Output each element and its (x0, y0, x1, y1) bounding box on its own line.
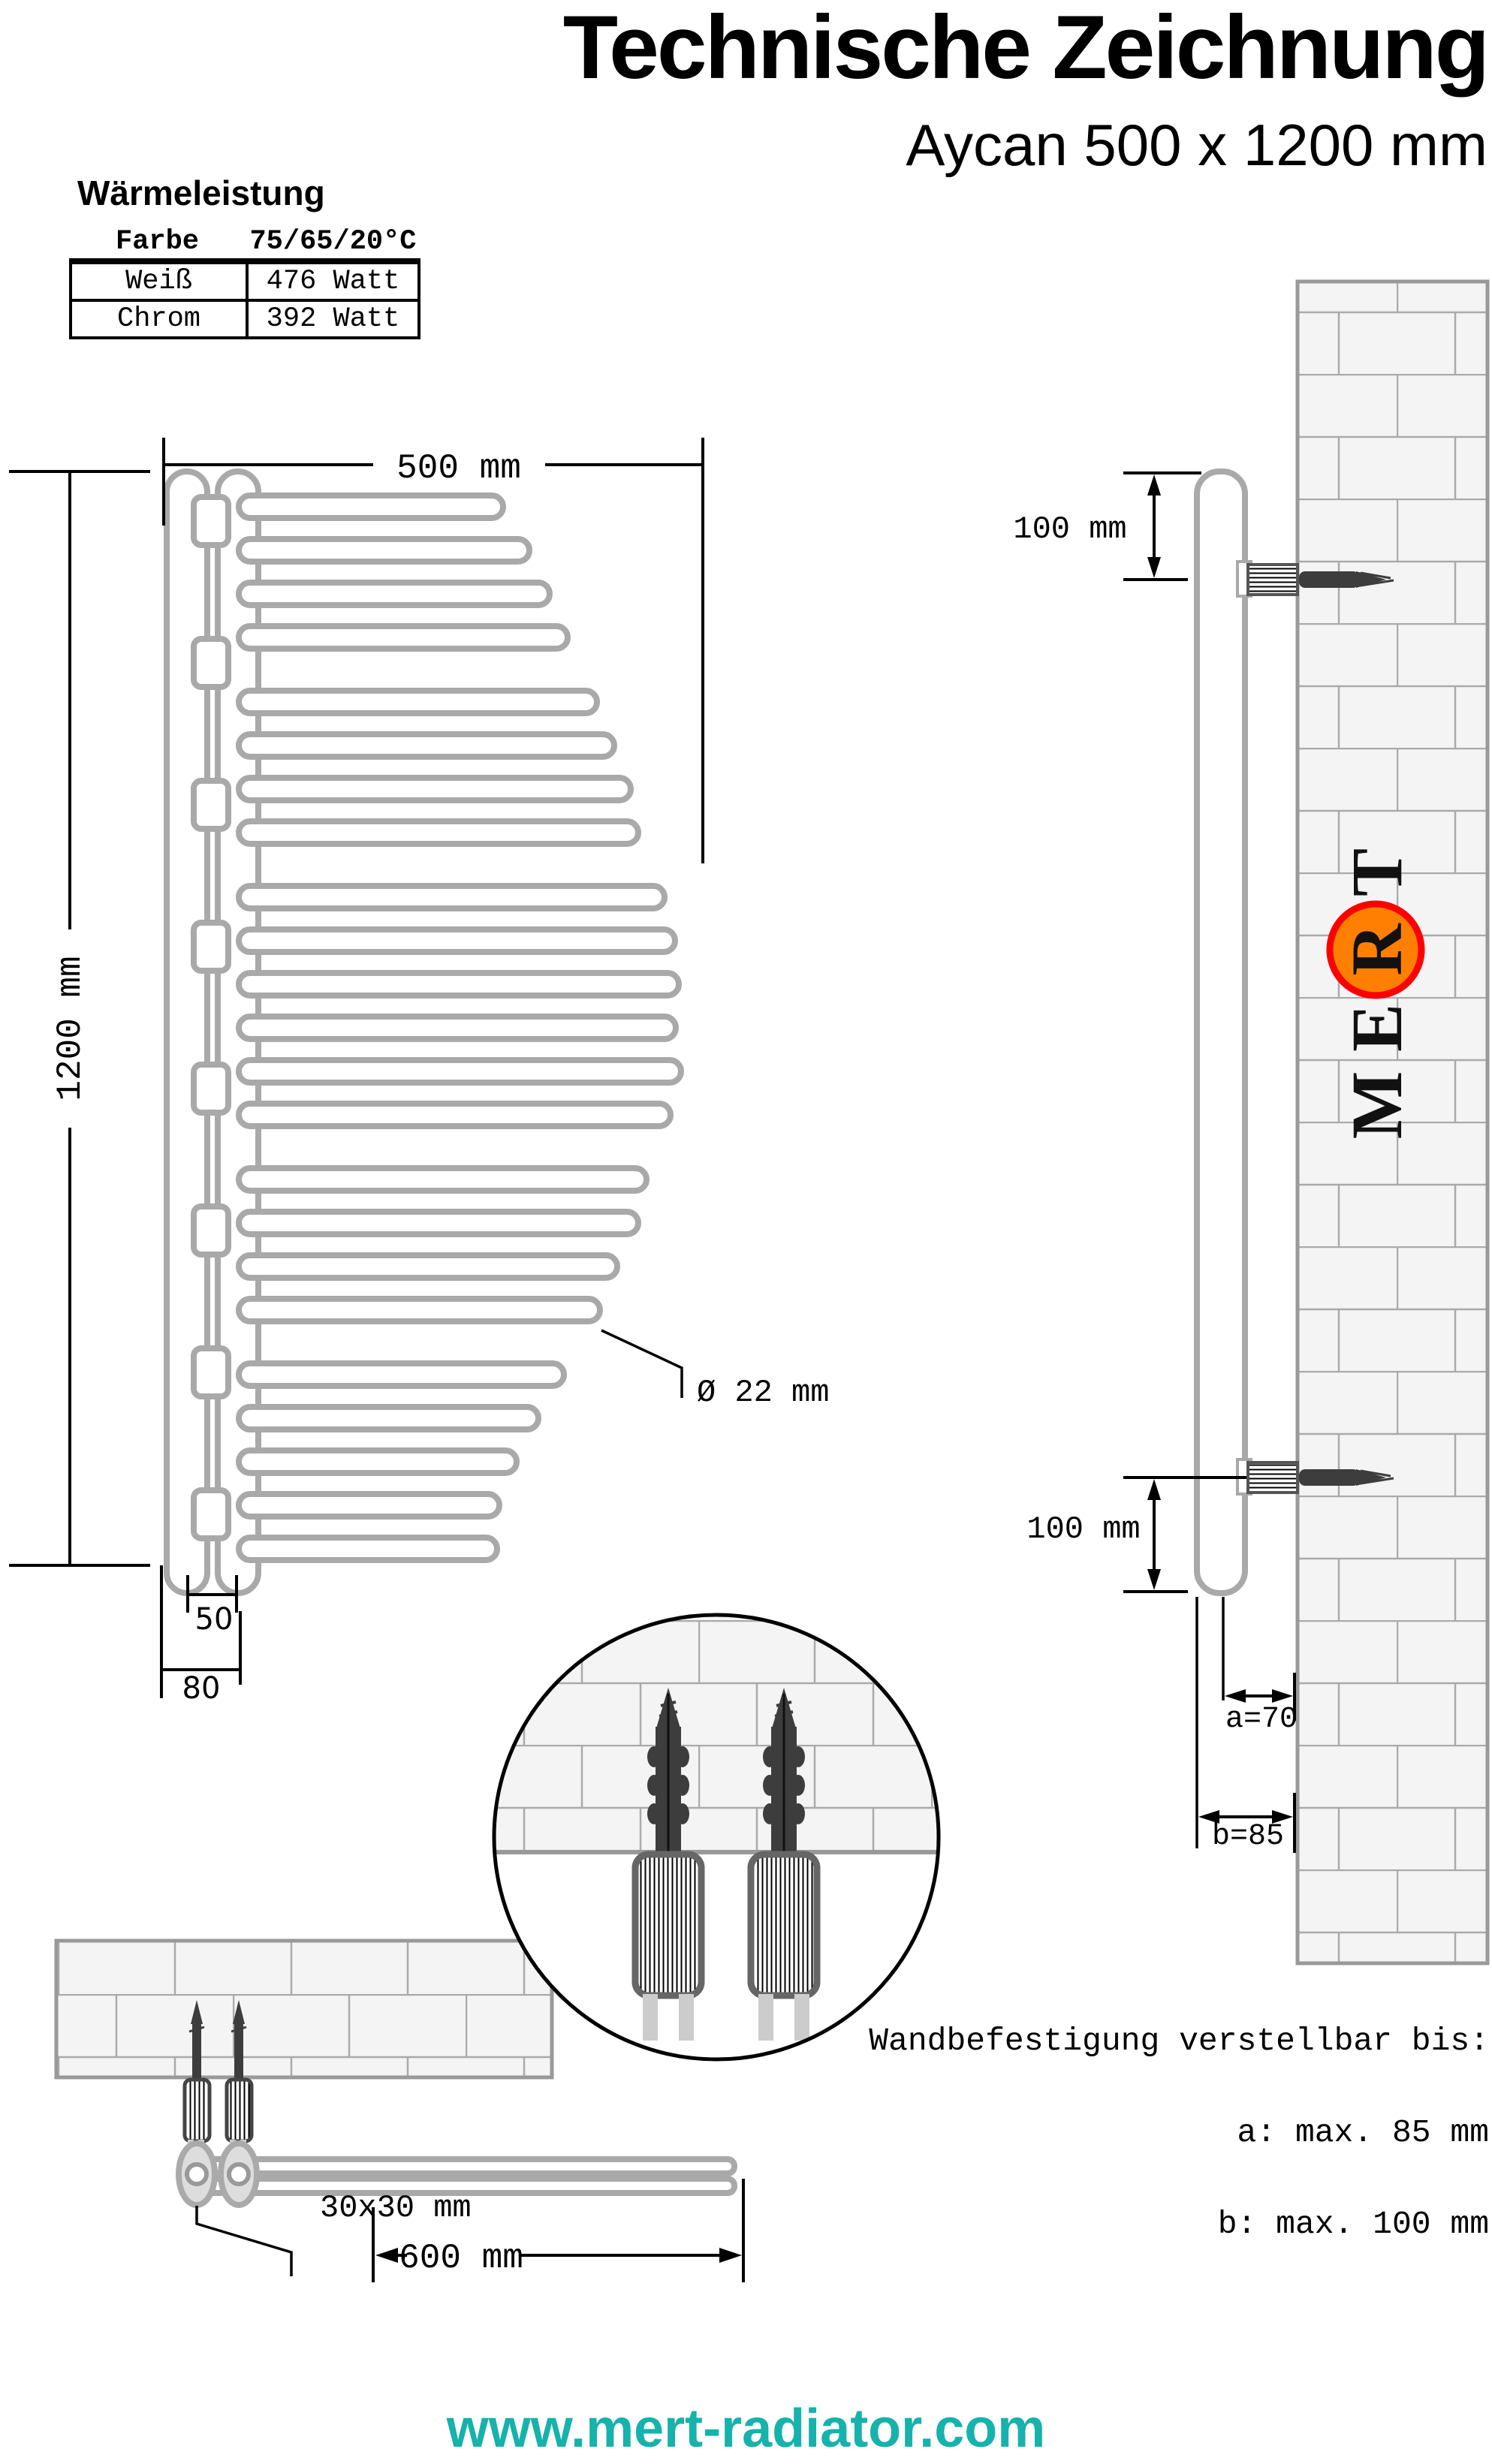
wall-distance-a-label: a=70 (1225, 1703, 1298, 1737)
cell-watt-chrome: 392 Watt (249, 303, 417, 335)
logo-letter-t: T (1337, 848, 1417, 896)
mount-note: Wandbefestigung verstellbar bis: a: max.… (869, 2018, 1489, 2247)
bracket-cylinder-right (227, 2080, 252, 2141)
tube-spacing-label: 50 (195, 1602, 234, 1637)
bracket-cylinder-zoom-right (751, 1854, 817, 1996)
width-label: 500 mm (396, 449, 521, 488)
tube-hooks-zoom (622, 2063, 830, 2117)
cell-color-chrome: Chrom (72, 302, 249, 336)
page-subtitle: Aycan 500 x 1200 mm (906, 111, 1487, 179)
bottom-offset-label: 100 mm (1026, 1511, 1140, 1547)
website-link[interactable]: www.mert-radiator.com (0, 2398, 1492, 2459)
mount-note-line2: a: max. 85 mm (1237, 2114, 1489, 2151)
logo-letter-e: E (1337, 1004, 1417, 1052)
wall-distance-b-label: b=85 (1212, 1820, 1284, 1854)
bracket-cylinder-zoom-left (635, 1854, 701, 1996)
mount-note-line1: Wandbefestigung verstellbar bis: (869, 2023, 1489, 2059)
page-title: Technische Zeichnung (563, 0, 1487, 99)
heat-output-heading: Wärmeleistung (77, 173, 325, 213)
technical-drawing-page: 500 mm 1200 mm 50 80 (0, 0, 1492, 2464)
dimension-height-1200: 1200 mm (9, 471, 150, 1565)
column-header-color: Farbe (69, 226, 246, 258)
column-header-temperature: 75/65/20°C (246, 226, 420, 258)
mount-note-line3: b: max. 100 mm (1218, 2206, 1489, 2243)
table-row: Chrom 392 Watt (72, 299, 417, 336)
side-view-drawing: 100 mm 100 mm a=70 (1013, 282, 1487, 1963)
table-row: Weiß 476 Watt (72, 264, 417, 299)
bracket-cylinder-left (185, 2080, 209, 2141)
height-label: 1200 mm (51, 956, 90, 1101)
heat-output-table-header: Farbe 75/65/20°C (69, 225, 420, 261)
tube-diameter-label: Ø 22 mm (697, 1375, 829, 1411)
cell-watt-white: 476 Watt (249, 266, 417, 297)
bracket-size-label: 30x30 mm (320, 2190, 472, 2226)
depth-label: 80 (182, 1671, 221, 1706)
logo-letter-r: R (1337, 923, 1417, 976)
dimension-tube-diameter: Ø 22 mm (601, 1330, 829, 1411)
side-tube (1197, 471, 1245, 1593)
dimension-a70: a=70 (1223, 1597, 1298, 1737)
cell-color-white: Weiß (72, 264, 249, 299)
heat-output-table: Weiß 476 Watt Chrom 392 Watt (69, 261, 420, 339)
bottom-tube-1 (197, 2159, 734, 2173)
top-offset-label: 100 mm (1013, 511, 1126, 547)
logo-letter-m: M (1337, 1071, 1417, 1140)
mount-width-label: 600 mm (399, 2239, 523, 2278)
front-view-drawing: 500 mm 1200 mm 50 80 (9, 438, 829, 1706)
wall-bottom-strip (56, 1941, 552, 2077)
dimension-top-offset: 100 mm (1013, 473, 1201, 580)
radiator-bars (239, 496, 681, 1560)
